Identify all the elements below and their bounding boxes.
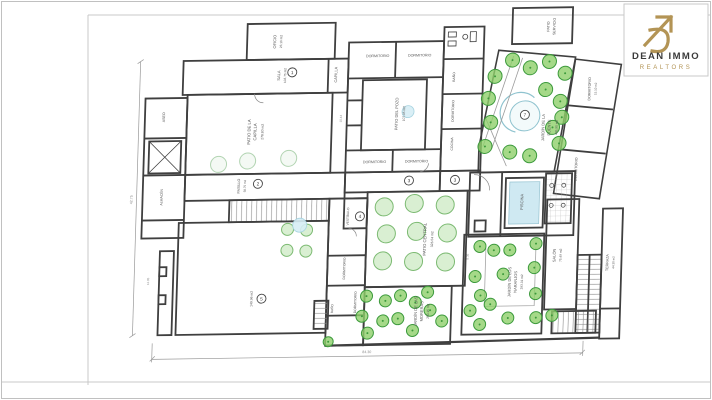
room-label: DORMITORIO (342, 257, 347, 279)
room-label: 495.90 m2 (554, 120, 558, 135)
room-label: 44.30 m2 (611, 256, 615, 269)
room-label: 12.05 (146, 277, 150, 285)
room-label: PASILLO (237, 179, 241, 194)
room-label: TERRAZA (605, 254, 610, 271)
room-label: JARDÍN DE LA (540, 114, 546, 142)
tree-icon (405, 194, 424, 212)
room-label: SALA (276, 70, 281, 81)
floorplan-canvas: OFICIO23.10 m2SALA103.75 m2CAPILLAPATIO … (0, 0, 712, 400)
room-label: CAPILLA (252, 123, 258, 141)
room-label: BAÑO (329, 304, 334, 314)
room-label: PATIO CENTRAL (422, 222, 428, 255)
room-label: JARDÍN DE LAS (413, 296, 419, 326)
room-label: DORMITORIO (366, 54, 390, 58)
room-label: DORMITORIO (353, 291, 358, 313)
room-label: 23.10 m2 (279, 35, 283, 49)
tree-icon (436, 196, 455, 214)
room-label: 75.49 m2 (558, 248, 562, 262)
room-label: 149.96 m2 (249, 291, 253, 307)
water-feature (292, 218, 306, 232)
tree-icon (436, 253, 455, 271)
room-label: DORMITORIO (587, 77, 592, 101)
room-label: 107.05 m2 (402, 106, 406, 121)
room-label: SERVICIO (552, 18, 557, 35)
floor-plan: OFICIO23.10 m2SALA103.75 m2CAPILLAPATIO … (125, 6, 629, 362)
room-label: COCINA (450, 137, 454, 151)
tree-icon (404, 252, 423, 270)
room-label: 250.15 m2 (426, 303, 430, 318)
tree-icon (300, 245, 312, 257)
room-label: PATIO (546, 21, 550, 32)
room-label: CAPILLA (334, 66, 338, 82)
tree-icon (438, 224, 457, 242)
room-label: 15.10 m2 (593, 82, 597, 95)
tree-icon (239, 153, 255, 169)
tree-icon (377, 225, 396, 243)
room-label: ALMACÉN (158, 189, 164, 206)
tree-icon (281, 223, 293, 235)
room-label: 278.80 m2 (260, 124, 264, 140)
room-label: ASEO (162, 112, 166, 122)
room-label: 10.44 (339, 115, 343, 123)
room-label: 58.75 m2 (243, 179, 247, 192)
brand-logo-box: DEAN IMMO REALTORS (624, 4, 708, 76)
brand-name: DEAN IMMO (632, 51, 700, 62)
tree-icon (281, 244, 293, 256)
room-label: FUENTE (546, 119, 551, 135)
room-label: PISCINA (519, 193, 524, 209)
room-label: PATIO DE LA (246, 119, 252, 144)
tree-icon (373, 252, 392, 270)
floorplan-page: OFICIO23.10 m2SALA103.75 m2CAPILLAPATIO … (0, 0, 712, 400)
room-label: DORMITORIO (363, 160, 387, 164)
room-label: PATIO DEL POZO (393, 97, 399, 130)
dimension-label: 42.75 (129, 195, 133, 204)
room-label: NARANJOS (513, 271, 519, 293)
room-label: OFICIO (272, 35, 277, 49)
room-label: DORMITORIO (408, 53, 432, 57)
room-label: DORMITORIO (405, 159, 429, 163)
tree-icon (280, 150, 296, 166)
room-label: 326.04 m2 (430, 231, 434, 247)
brand-tagline: REALTORS (640, 65, 693, 71)
room-label: 8.35 (466, 253, 470, 259)
room-label: DORMITORIO (451, 100, 456, 122)
tree-icon (210, 156, 226, 172)
room-label: DORMITORIO (574, 157, 579, 181)
room-label: MORERAS (419, 301, 425, 322)
pool-water (509, 182, 540, 224)
room-label: 293.01 m2 (520, 274, 524, 289)
dimension-label: 84.30 (362, 350, 371, 354)
tree-icon (375, 198, 394, 216)
room-label: SALÓN (551, 248, 556, 262)
room-label: BAÑO (451, 72, 456, 82)
room-label: VESTÍBULO (346, 207, 351, 225)
room-label: 103.75 m2 (283, 68, 287, 83)
room-label: JARDÍN DE LOS (506, 267, 512, 298)
